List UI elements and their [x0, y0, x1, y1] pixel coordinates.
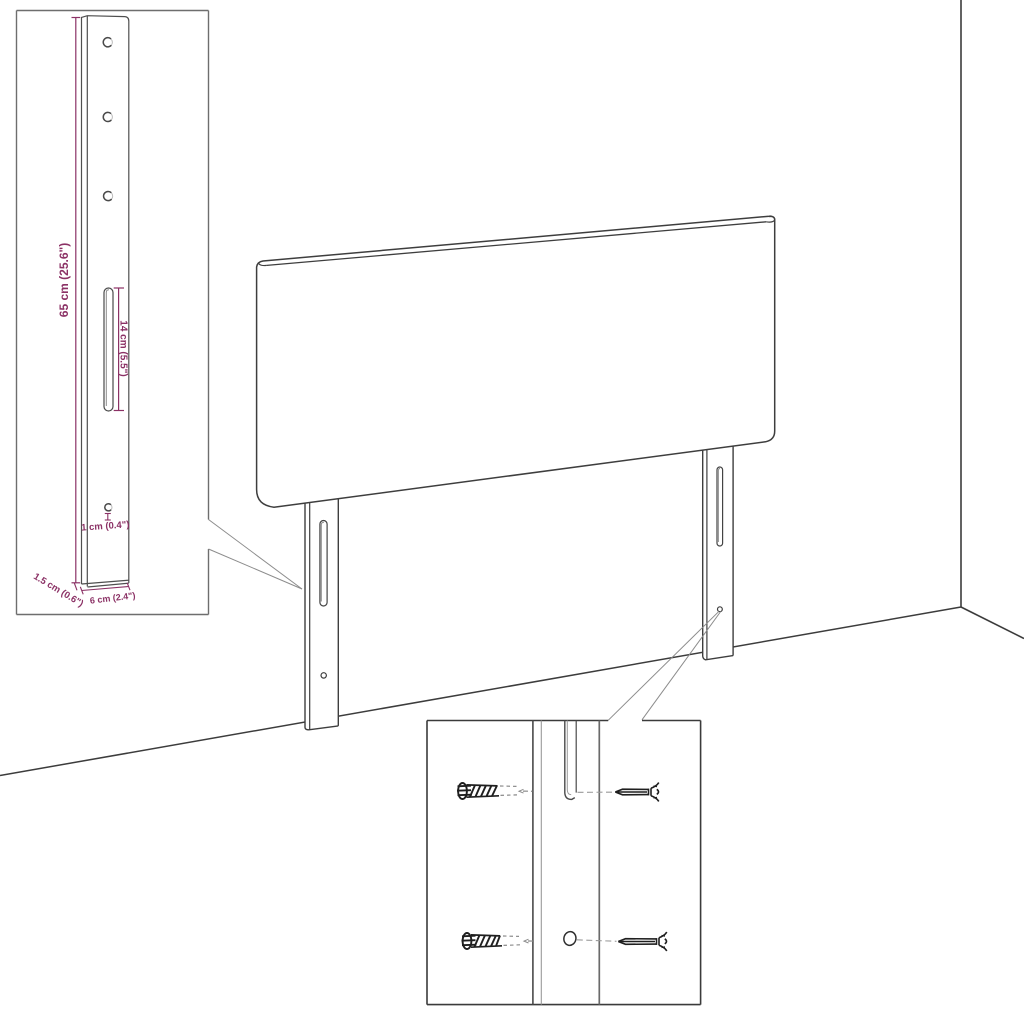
- svg-text:65 cm (25.6"): 65 cm (25.6"): [57, 243, 71, 317]
- svg-text:14 cm (5.5"): 14 cm (5.5"): [117, 320, 128, 376]
